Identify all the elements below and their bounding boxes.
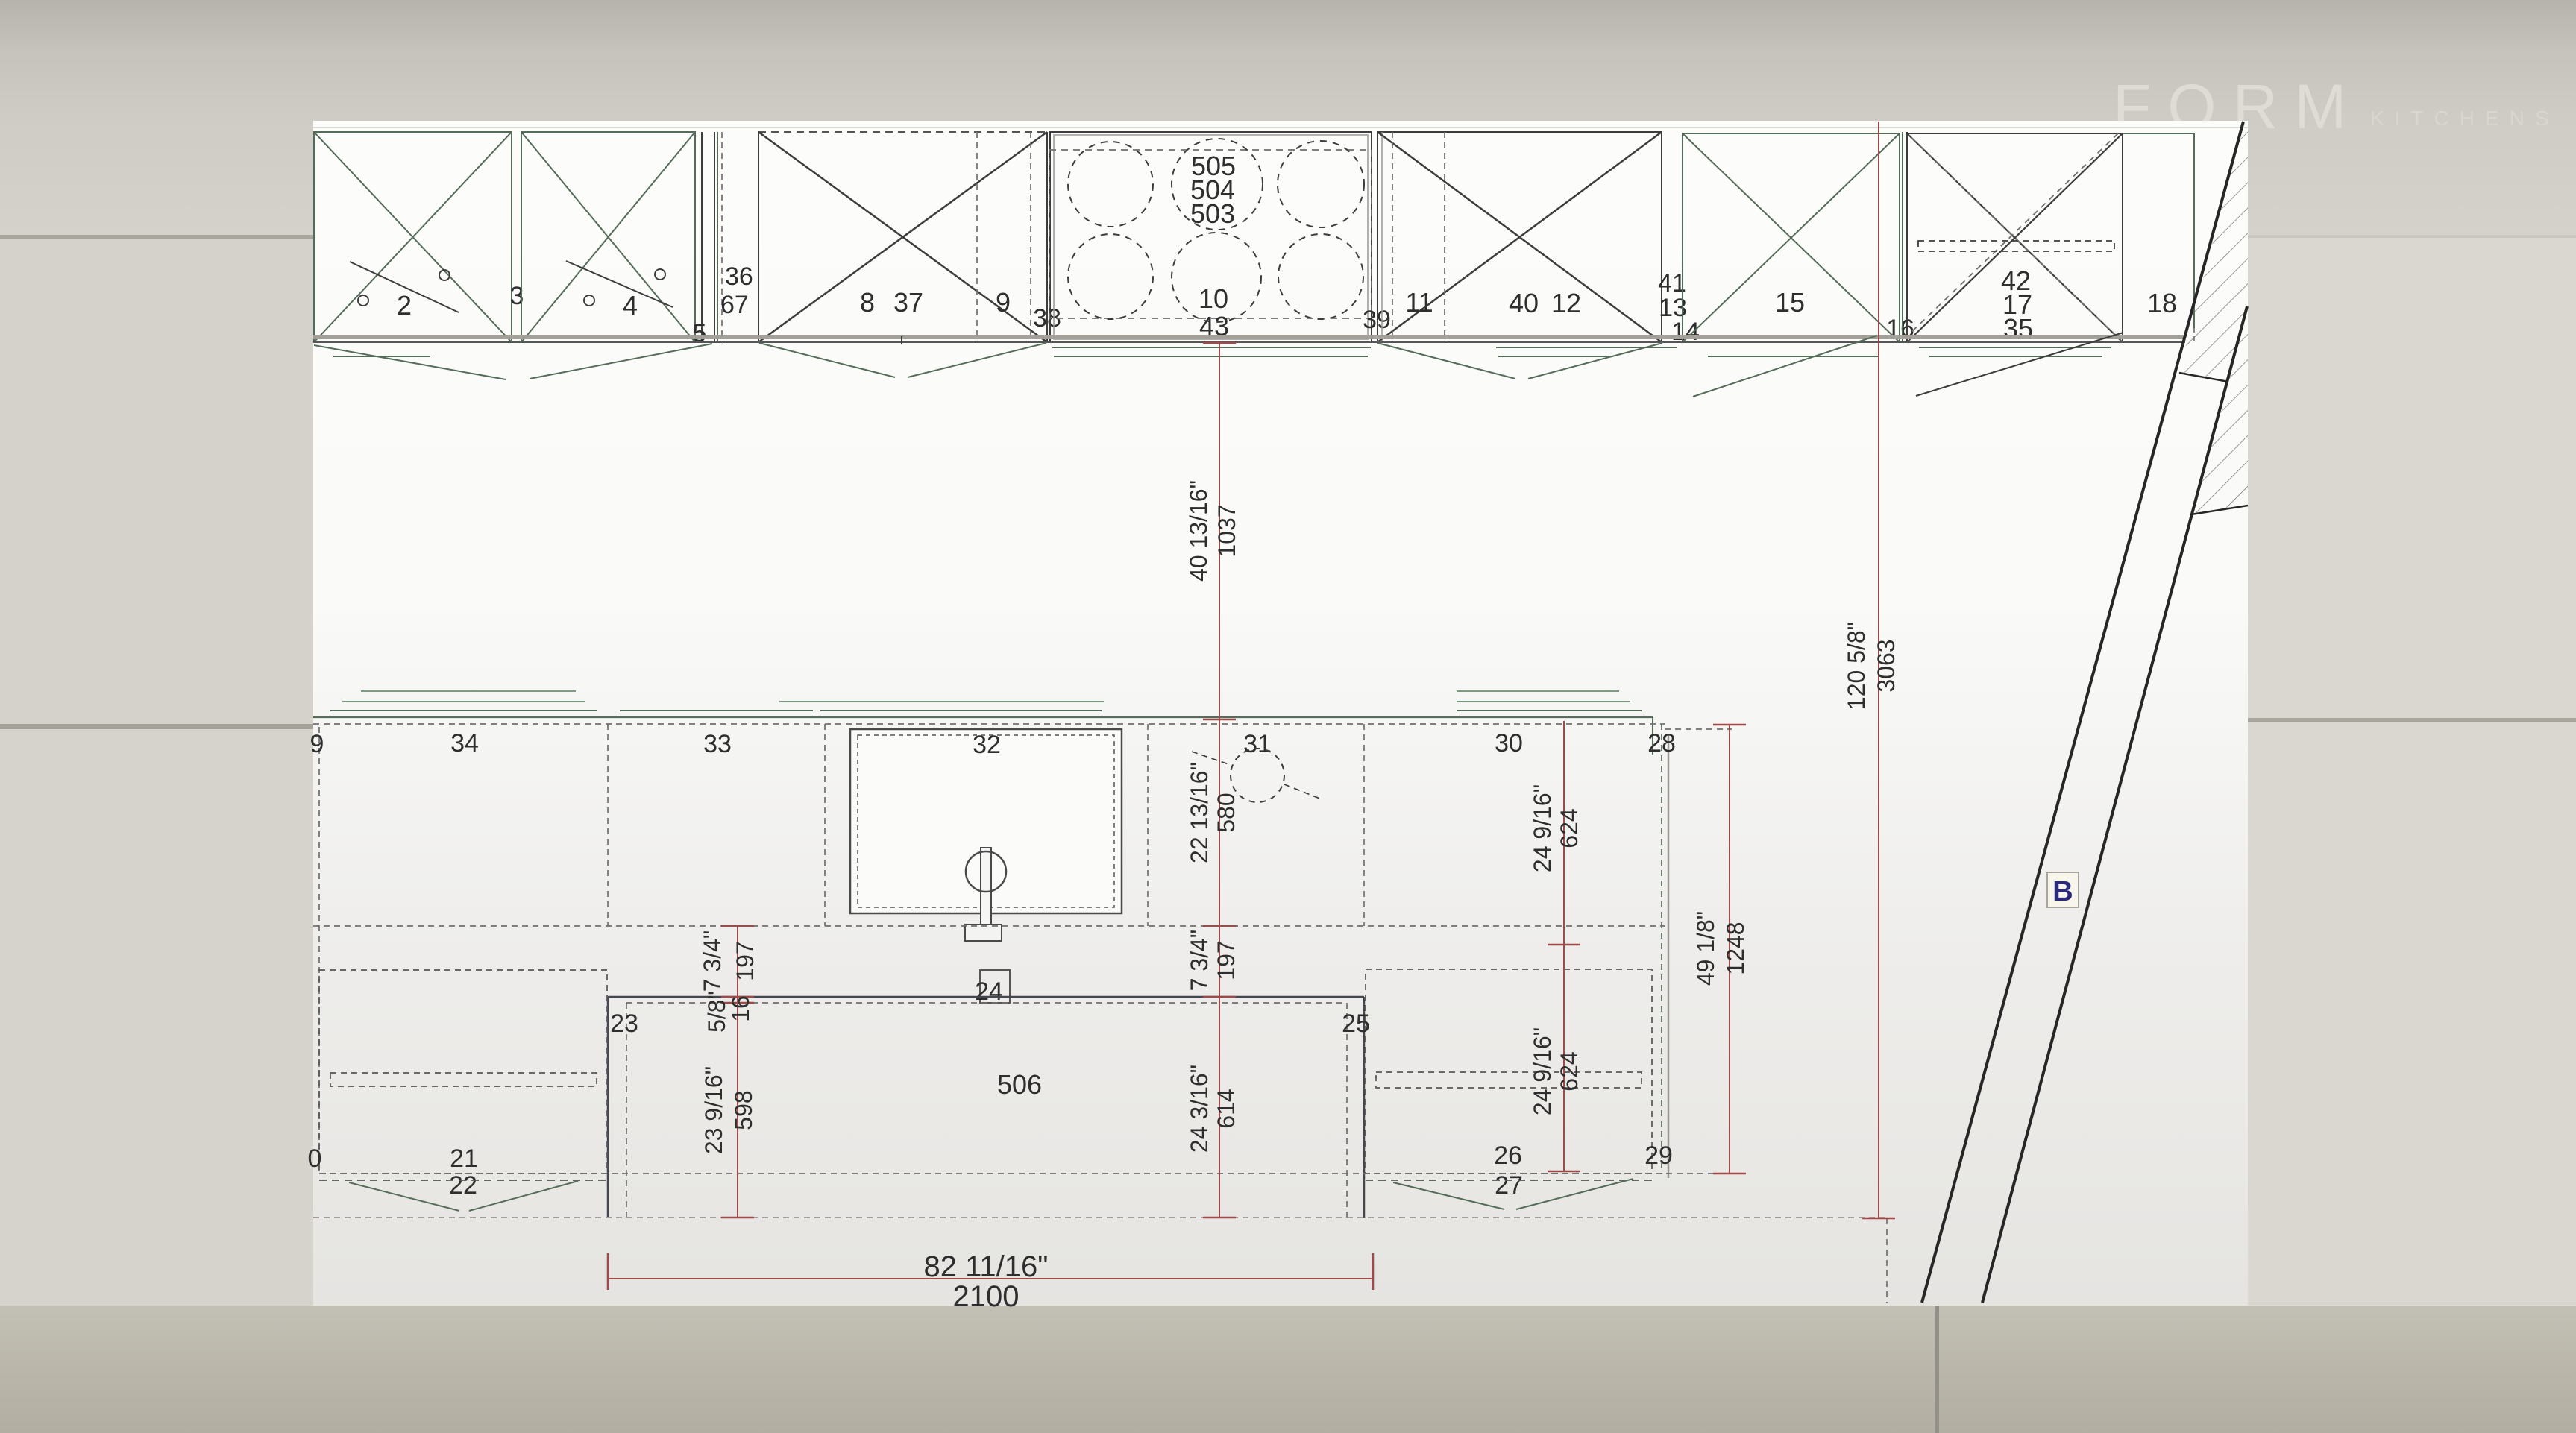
svg-text:22: 22	[449, 1171, 477, 1200]
svg-text:23 9/16": 23 9/16"	[700, 1066, 727, 1154]
svg-text:40 13/16": 40 13/16"	[1185, 480, 1212, 582]
svg-text:10: 10	[1199, 283, 1228, 314]
svg-text:624: 624	[1556, 808, 1583, 848]
svg-text:11: 11	[1405, 287, 1433, 318]
svg-text:0: 0	[308, 1144, 322, 1173]
svg-text:197: 197	[732, 941, 758, 980]
svg-text:32: 32	[973, 731, 1001, 759]
svg-text:21: 21	[450, 1144, 478, 1173]
svg-text:28: 28	[1647, 729, 1676, 758]
svg-text:24 9/16": 24 9/16"	[1529, 784, 1556, 872]
svg-text:82 11/16": 82 11/16"	[924, 1250, 1049, 1283]
svg-text:2100: 2100	[953, 1280, 1020, 1313]
svg-text:12: 12	[1551, 288, 1581, 318]
svg-text:5: 5	[693, 319, 707, 347]
svg-text:34: 34	[450, 729, 479, 758]
svg-text:36: 36	[725, 262, 753, 291]
svg-text:2: 2	[397, 290, 412, 321]
svg-text:B: B	[2052, 876, 2073, 907]
svg-text:27: 27	[1495, 1171, 1523, 1200]
svg-text:26: 26	[1494, 1141, 1522, 1170]
svg-text:9: 9	[996, 287, 1011, 318]
svg-text:506: 506	[997, 1069, 1042, 1100]
svg-text:1248: 1248	[1722, 922, 1749, 974]
svg-text:503: 503	[1190, 198, 1235, 229]
svg-text:23: 23	[610, 1010, 638, 1038]
svg-text:7 3/4": 7 3/4"	[1186, 930, 1213, 992]
svg-text:580: 580	[1213, 793, 1240, 832]
svg-text:40: 40	[1509, 288, 1539, 318]
svg-text:5/8": 5/8"	[703, 991, 730, 1033]
svg-text:67: 67	[720, 291, 749, 319]
svg-text:15: 15	[1775, 287, 1805, 318]
svg-text:624: 624	[1556, 1051, 1583, 1091]
svg-text:4: 4	[623, 290, 638, 321]
svg-text:24: 24	[975, 977, 1003, 1006]
svg-text:120 5/8": 120 5/8"	[1843, 622, 1870, 710]
svg-text:KITCHENS: KITCHENS	[2370, 107, 2560, 130]
svg-text:18: 18	[2147, 288, 2177, 318]
svg-text:31: 31	[1243, 730, 1272, 758]
svg-text:25: 25	[1342, 1010, 1370, 1038]
svg-text:22 13/16": 22 13/16"	[1186, 762, 1213, 863]
svg-text:3063: 3063	[1873, 639, 1900, 692]
svg-text:197: 197	[1213, 940, 1240, 980]
svg-text:7 3/4": 7 3/4"	[699, 930, 726, 992]
svg-text:1037: 1037	[1213, 504, 1240, 557]
svg-text:598: 598	[730, 1090, 757, 1130]
svg-text:24 9/16": 24 9/16"	[1529, 1027, 1556, 1115]
svg-text:37: 37	[893, 287, 923, 318]
svg-text:29: 29	[1644, 1141, 1673, 1170]
svg-text:49 1/8": 49 1/8"	[1692, 911, 1719, 986]
svg-text:8: 8	[860, 287, 875, 318]
svg-text:16: 16	[727, 995, 754, 1022]
svg-text:30: 30	[1495, 729, 1523, 758]
svg-text:24 3/16": 24 3/16"	[1186, 1065, 1213, 1153]
svg-text:614: 614	[1213, 1089, 1240, 1128]
svg-text:33: 33	[703, 730, 732, 758]
svg-text:9: 9	[310, 730, 324, 758]
